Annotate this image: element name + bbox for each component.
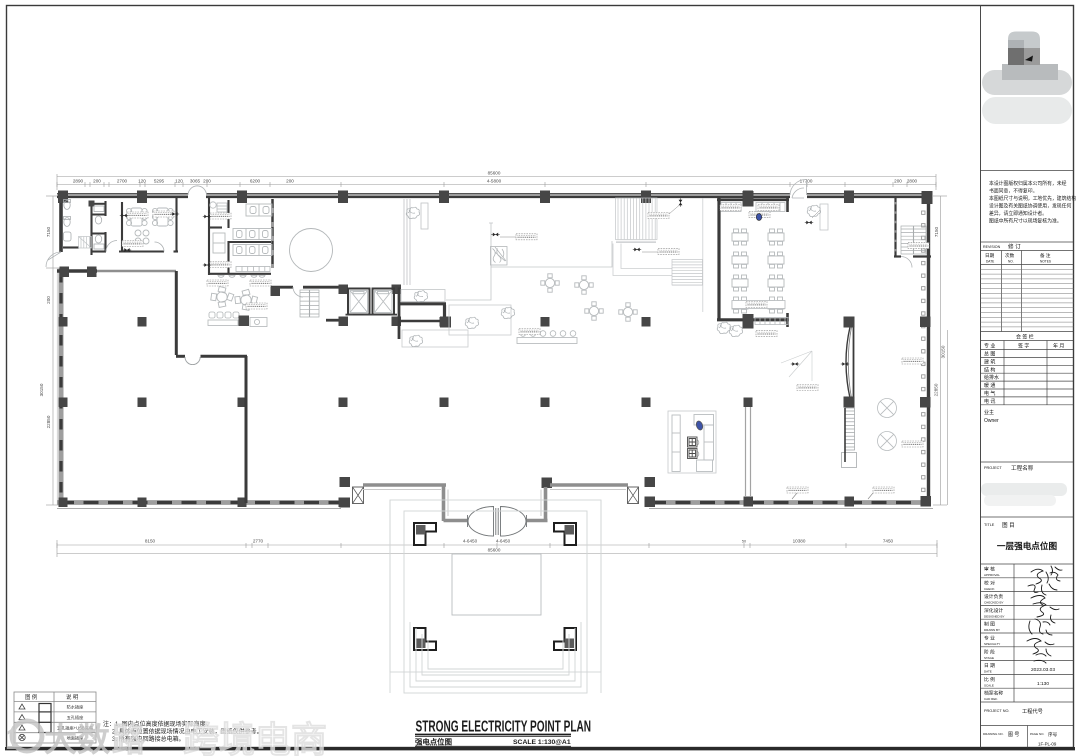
svg-text:说 明: 说 明 <box>66 693 78 701</box>
svg-text:校 对: 校 对 <box>984 579 995 586</box>
svg-text:7150: 7150 <box>46 226 51 237</box>
svg-text:会 签 栏: 会 签 栏 <box>1016 334 1034 341</box>
svg-text:总 图: 总 图 <box>984 351 995 358</box>
svg-text:200: 200 <box>894 179 902 184</box>
svg-text:30150: 30150 <box>941 345 946 358</box>
svg-text:PAGE NO.: PAGE NO. <box>1030 732 1044 736</box>
svg-text:4-6450: 4-6450 <box>463 539 478 544</box>
svg-text:22850: 22850 <box>934 383 939 396</box>
svg-text:日期: 日期 <box>985 253 995 259</box>
svg-text:REVISION: REVISION <box>983 245 1001 249</box>
svg-text:7450: 7450 <box>883 539 894 544</box>
svg-text:NOTES: NOTES <box>1040 260 1051 264</box>
svg-text:4-6450: 4-6450 <box>496 539 511 544</box>
svg-text:比 例: 比 例 <box>984 676 995 683</box>
svg-text:3065: 3065 <box>190 179 201 184</box>
svg-text:建 筑: 建 筑 <box>984 358 995 365</box>
svg-text:1F-PL-09: 1F-PL-09 <box>1038 742 1057 747</box>
svg-text:7150: 7150 <box>934 226 939 237</box>
svg-text:次数: 次数 <box>1005 252 1015 259</box>
svg-text:85600: 85600 <box>488 171 501 176</box>
svg-text:图 例: 图 例 <box>25 693 37 701</box>
svg-text:专 业: 专 业 <box>984 343 995 350</box>
svg-text:1: 1 <box>5 723 22 756</box>
svg-text:备 注: 备 注 <box>1040 252 1051 259</box>
svg-text:电 讯: 电 讯 <box>984 398 995 405</box>
svg-text:强电点位图: 强电点位图 <box>415 738 452 747</box>
svg-text:50: 50 <box>742 540 746 544</box>
svg-text:200: 200 <box>46 296 51 304</box>
svg-text:APPROVAL: APPROVAL <box>984 573 1000 577</box>
svg-text:跨境电商: 跨境电商 <box>183 719 327 756</box>
svg-text:日 期: 日 期 <box>984 663 995 669</box>
svg-text:1:130: 1:130 <box>1037 681 1049 687</box>
svg-text:档案名称: 档案名称 <box>984 690 1003 697</box>
svg-text:6200: 6200 <box>250 179 261 184</box>
svg-text:200: 200 <box>203 179 211 184</box>
svg-text:书面同意，不得复印。: 书面同意，不得复印。 <box>989 188 1037 195</box>
svg-text:NO.: NO. <box>1008 260 1014 264</box>
svg-text:Owner: Owner <box>984 418 999 424</box>
svg-text:8150: 8150 <box>145 539 156 544</box>
svg-text:4-5800: 4-5800 <box>487 179 502 184</box>
svg-text:200: 200 <box>93 179 101 184</box>
svg-text:审 核: 审 核 <box>984 566 995 573</box>
svg-text:DRAWN BY: DRAWN BY <box>984 628 1000 632</box>
svg-text:PROJECT: PROJECT <box>984 466 1002 470</box>
svg-text:30150: 30150 <box>39 383 44 396</box>
svg-text:业主: 业主 <box>984 409 994 416</box>
svg-text:给排水: 给排水 <box>984 374 999 381</box>
svg-text:工程名称: 工程名称 <box>1011 464 1034 472</box>
svg-text:制 图: 制 图 <box>984 621 995 628</box>
svg-text:图 号: 图 号 <box>1008 732 1019 738</box>
svg-text:结 构: 结 构 <box>984 366 995 373</box>
svg-text:年 月: 年 月 <box>1053 343 1064 350</box>
svg-text:序号: 序号 <box>1048 731 1058 738</box>
svg-text:DATE: DATE <box>984 670 992 674</box>
svg-text:专 业: 专 业 <box>984 635 995 642</box>
svg-text:2700: 2700 <box>117 179 128 184</box>
svg-text:120: 120 <box>138 179 146 184</box>
svg-text:CHECKED BY: CHECKED BY <box>984 601 1004 605</box>
svg-text:一层强电点位图: 一层强电点位图 <box>997 540 1058 551</box>
svg-text:DESIGNED BY: DESIGNED BY <box>984 614 1005 618</box>
svg-text:CHECK: CHECK <box>984 587 995 591</box>
svg-text:差异，请立即通知设计者。: 差异，请立即通知设计者。 <box>989 210 1047 217</box>
svg-text:本图纸尺寸与说明，工地优先，建筑结构: 本图纸尺寸与说明，工地优先，建筑结构 <box>989 195 1076 202</box>
svg-text:120: 120 <box>175 179 183 184</box>
svg-text:深化设计: 深化设计 <box>984 607 1003 614</box>
svg-text:STRONG ELECTRICITY POINT PLAN: STRONG ELECTRICITY POINT PLAN <box>416 717 592 735</box>
svg-text:图 目: 图 目 <box>1002 521 1015 529</box>
svg-text:TITLE: TITLE <box>984 523 995 527</box>
svg-text:2800: 2800 <box>907 179 918 184</box>
svg-text:DRAWING NO.: DRAWING NO. <box>983 732 1004 736</box>
svg-text:DATE: DATE <box>986 260 994 264</box>
svg-text:2890: 2890 <box>73 179 84 184</box>
svg-text:暖 通: 暖 通 <box>984 382 995 389</box>
svg-text:22850: 22850 <box>46 415 51 428</box>
svg-text:10380: 10380 <box>793 539 806 544</box>
svg-text:设计图及有关图纸协调使用，发现任何: 设计图及有关图纸协调使用，发现任何 <box>989 203 1071 210</box>
svg-text:5295: 5295 <box>154 179 165 184</box>
svg-text:PROJECT NO.: PROJECT NO. <box>984 709 1009 713</box>
svg-text:设计负责: 设计负责 <box>984 593 1003 600</box>
svg-text:修 订: 修 订 <box>1008 243 1021 251</box>
svg-text:85600: 85600 <box>488 548 501 553</box>
svg-text:STAGE: STAGE <box>984 656 994 660</box>
svg-text:SPECIALTY: SPECIALTY <box>984 642 1000 646</box>
svg-text:CAD REF.: CAD REF. <box>984 697 998 701</box>
svg-text:200: 200 <box>286 179 294 184</box>
svg-text:防水插座: 防水插座 <box>67 704 84 711</box>
svg-text:2770: 2770 <box>253 539 264 544</box>
svg-text:大数: 大数 <box>44 721 111 756</box>
svg-text:SCALE 1:130@A1: SCALE 1:130@A1 <box>513 739 571 746</box>
svg-text:阶 段: 阶 段 <box>984 648 995 655</box>
svg-text:五孔插座: 五孔插座 <box>67 714 84 721</box>
svg-text:路: 路 <box>112 721 146 756</box>
svg-text:工程代号: 工程代号 <box>1022 707 1043 715</box>
svg-text:本设计图版权归属本公司所有，未经: 本设计图版权归属本公司所有，未经 <box>989 180 1067 187</box>
svg-text:签 字: 签 字 <box>1018 343 1029 350</box>
svg-text:电 气: 电 气 <box>984 390 995 397</box>
svg-text:2023.03.03: 2023.03.03 <box>1031 667 1055 673</box>
svg-text:SCALE: SCALE <box>984 683 994 687</box>
svg-text:图纸中所有尺寸以现场复核为准。: 图纸中所有尺寸以现场复核为准。 <box>989 218 1062 225</box>
